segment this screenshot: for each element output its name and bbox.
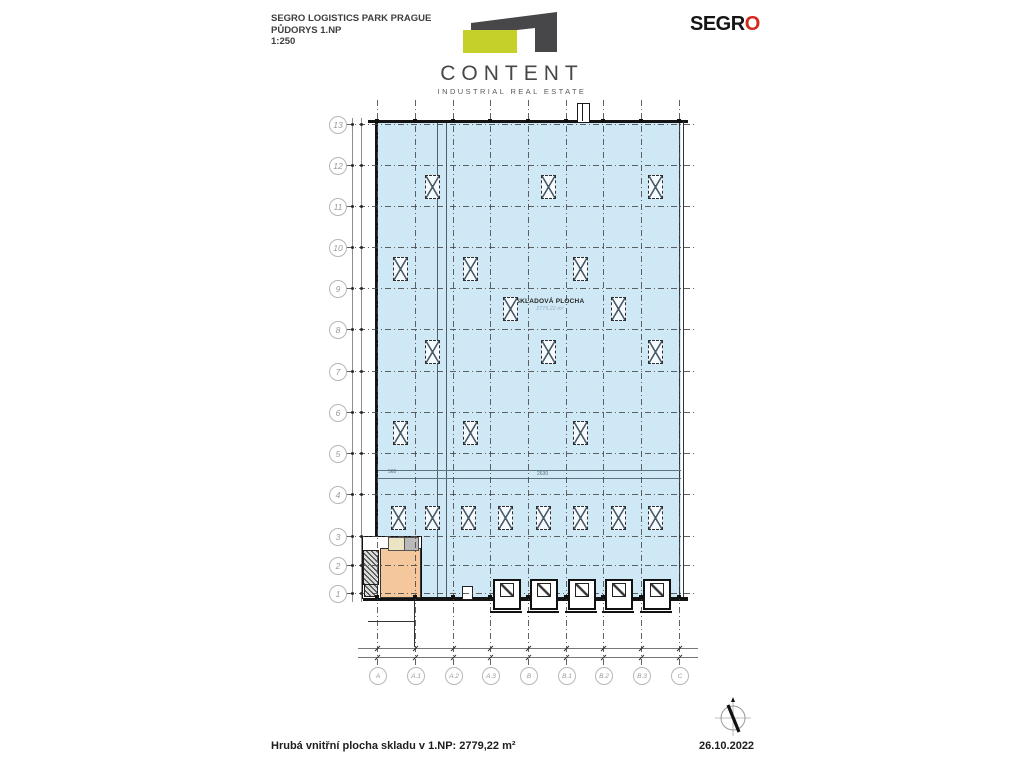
loading-dock — [493, 579, 521, 610]
skylight-symbol — [393, 257, 408, 281]
grid-line-row — [346, 165, 697, 166]
row-axis-bubble: 2 — [329, 557, 347, 575]
grid-chain-dot — [360, 564, 363, 567]
grid-line-col — [679, 100, 680, 666]
dock-leveler — [612, 583, 626, 597]
row-axis-bubble: 1 — [329, 585, 347, 603]
col-axis-bubble: A.3 — [482, 667, 500, 685]
gross-area-text: Hrubá vnitřní plocha skladu v 1.NP: 2779… — [271, 740, 516, 752]
skylight-symbol — [463, 421, 478, 445]
dock-base — [527, 611, 559, 613]
skylight-symbol — [611, 297, 626, 321]
row-axis-bubble: 4 — [329, 486, 347, 504]
grid-line-row — [346, 536, 697, 537]
skylight-symbol — [463, 257, 478, 281]
grid-chain-dot — [351, 328, 354, 331]
grid-line-col — [641, 100, 642, 666]
grid-line-row — [346, 371, 697, 372]
wall-grid-marker — [413, 119, 417, 123]
loading-dock — [643, 579, 671, 610]
loading-dock — [530, 579, 558, 610]
dock-leveler — [650, 583, 664, 597]
roof-access-symbol-line — [582, 104, 583, 121]
wall-grid-marker — [526, 119, 530, 123]
col-axis-bubble: B — [520, 667, 538, 685]
wall-grid-marker — [639, 119, 643, 123]
grid-line-row — [346, 288, 697, 289]
north-arrow — [711, 696, 755, 738]
skylight-symbol — [648, 340, 663, 364]
wall-grid-marker — [601, 119, 605, 123]
grid-chain-dot — [360, 287, 363, 290]
dock-leveler — [575, 583, 589, 597]
skylight-symbol — [425, 506, 440, 530]
grid-chain-dot — [360, 370, 363, 373]
interior-dimension-line — [378, 478, 681, 479]
wall-grid-marker — [677, 595, 681, 599]
skylight-symbol — [425, 340, 440, 364]
row-axis-bubble: 13 — [329, 116, 347, 134]
grid-chain-dot — [360, 246, 363, 249]
technical-room — [404, 537, 419, 551]
grid-chain-dot — [351, 411, 354, 414]
skylight-symbol — [461, 506, 476, 530]
grid-chain-dot — [360, 123, 363, 126]
col-axis-bubble: B.1 — [558, 667, 576, 685]
grid-line-row — [346, 453, 697, 454]
row-axis-bubble: 10 — [329, 239, 347, 257]
dock-leveler — [500, 583, 514, 597]
grid-line-col — [453, 100, 454, 666]
dimension-line-vertical — [352, 118, 353, 602]
skylight-symbol — [573, 257, 588, 281]
skylight-symbol — [541, 340, 556, 364]
wall-grid-marker — [375, 595, 379, 599]
wall-grid-marker — [677, 119, 681, 123]
skylight-symbol — [611, 506, 626, 530]
grid-line-row — [346, 247, 697, 248]
skylight-symbol — [536, 506, 551, 530]
row-axis-bubble: 11 — [329, 198, 347, 216]
wall-grid-marker — [488, 595, 492, 599]
date-text: 26.10.2022 — [699, 740, 754, 752]
dimension-line-vertical — [361, 118, 362, 602]
skylight-symbol — [503, 297, 518, 321]
grid-chain-dot — [351, 452, 354, 455]
wall-grid-marker — [451, 595, 455, 599]
grid-chain-dot — [351, 205, 354, 208]
col-axis-bubble: A.2 — [445, 667, 463, 685]
dimension-label: 2630 — [537, 472, 548, 477]
grid-line-row — [346, 494, 697, 495]
loading-dock — [605, 579, 633, 610]
skylight-symbol — [541, 175, 556, 199]
skylight-symbol — [573, 421, 588, 445]
skylight-symbol — [648, 175, 663, 199]
col-axis-bubble: B.2 — [595, 667, 613, 685]
grid-chain-dot — [360, 592, 363, 595]
grid-line-col — [415, 100, 416, 666]
dimension-label: 560 — [388, 470, 396, 475]
dock-base — [490, 611, 522, 613]
dock-base — [640, 611, 672, 613]
grid-chain-dot — [360, 205, 363, 208]
interior-dimension-line — [378, 470, 681, 471]
expansion-joint-line — [446, 123, 447, 597]
row-axis-bubble: 9 — [329, 280, 347, 298]
grid-line-col — [528, 100, 529, 666]
grid-line-row — [346, 565, 697, 566]
col-axis-bubble: A — [369, 667, 387, 685]
col-axis-bubble: C — [671, 667, 689, 685]
grid-chain-dot — [360, 452, 363, 455]
skylight-symbol — [391, 506, 406, 530]
dock-leveler — [537, 583, 551, 597]
grid-line-row — [346, 329, 697, 330]
grid-chain-dot — [360, 164, 363, 167]
grid-chain-dot — [351, 123, 354, 126]
grid-chain-dot — [351, 164, 354, 167]
warehouse-hall-fill — [378, 123, 681, 597]
row-axis-bubble: 5 — [329, 445, 347, 463]
grid-line-col — [377, 100, 378, 666]
grid-line-col — [566, 100, 567, 666]
wall-grid-marker — [451, 119, 455, 123]
grid-chain-dot — [351, 246, 354, 249]
grid-chain-dot — [351, 592, 354, 595]
grid-chain-dot — [360, 411, 363, 414]
grid-chain-dot — [351, 287, 354, 290]
row-axis-bubble: 7 — [329, 363, 347, 381]
wall-grid-marker — [564, 119, 568, 123]
row-axis-bubble: 8 — [329, 321, 347, 339]
row-axis-bubble: 3 — [329, 528, 347, 546]
skylight-symbol — [425, 175, 440, 199]
drawing-sheet: SEGRO LOGISTICS PARK PRAGUE PŮDORYS 1.NP… — [0, 0, 1024, 768]
grid-chain-dot — [360, 535, 363, 538]
grid-chain-dot — [360, 328, 363, 331]
row-axis-bubble: 12 — [329, 157, 347, 175]
skylight-symbol — [573, 506, 588, 530]
skylight-symbol — [393, 421, 408, 445]
east-wall-outer — [683, 121, 684, 600]
dock-base — [602, 611, 634, 613]
grid-chain-dot — [351, 493, 354, 496]
grid-line-row — [346, 124, 697, 125]
wall-grid-marker — [413, 595, 417, 599]
roof-access-symbol — [577, 103, 590, 123]
grid-line-col — [603, 100, 604, 666]
skylight-symbol — [498, 506, 513, 530]
col-axis-bubble: A.1 — [407, 667, 425, 685]
floor-plan: SKLADOVÁ PLOCHA 2779,22 m² 1312111098765… — [0, 0, 1024, 768]
wall-grid-marker — [488, 119, 492, 123]
grid-line-row — [346, 412, 697, 413]
grid-chain-dot — [351, 564, 354, 567]
grid-line-row — [346, 206, 697, 207]
wall-grid-marker — [375, 119, 379, 123]
row-axis-bubble: 6 — [329, 404, 347, 422]
loading-dock — [568, 579, 596, 610]
grid-chain-dot — [351, 535, 354, 538]
exterior-ramp-line — [368, 621, 414, 622]
skylight-symbol — [648, 506, 663, 530]
grid-line-col — [490, 100, 491, 666]
col-axis-bubble: B.3 — [633, 667, 651, 685]
grid-chain-dot — [351, 370, 354, 373]
dock-base — [565, 611, 597, 613]
grid-chain-dot — [360, 493, 363, 496]
